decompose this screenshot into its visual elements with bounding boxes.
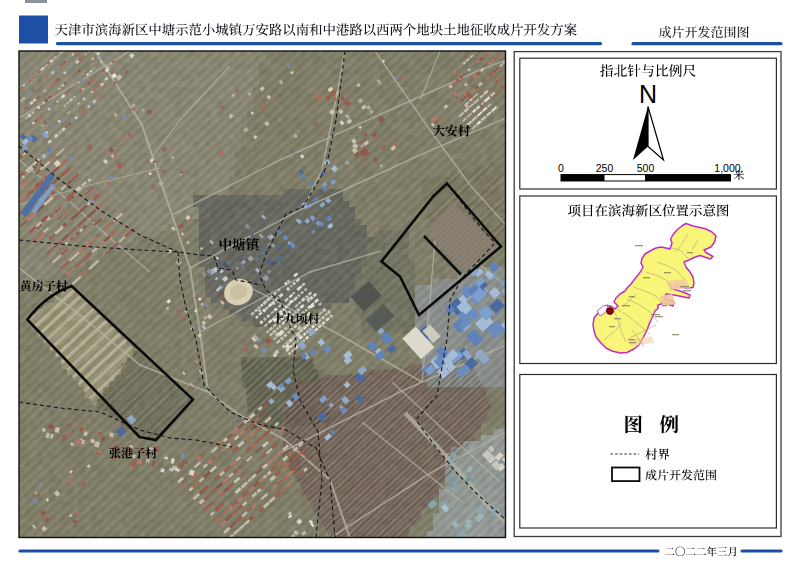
svg-text:500: 500 [637, 162, 655, 174]
svg-text:0: 0 [558, 162, 564, 174]
svg-text:250: 250 [596, 162, 614, 174]
svg-text:N: N [639, 80, 657, 108]
